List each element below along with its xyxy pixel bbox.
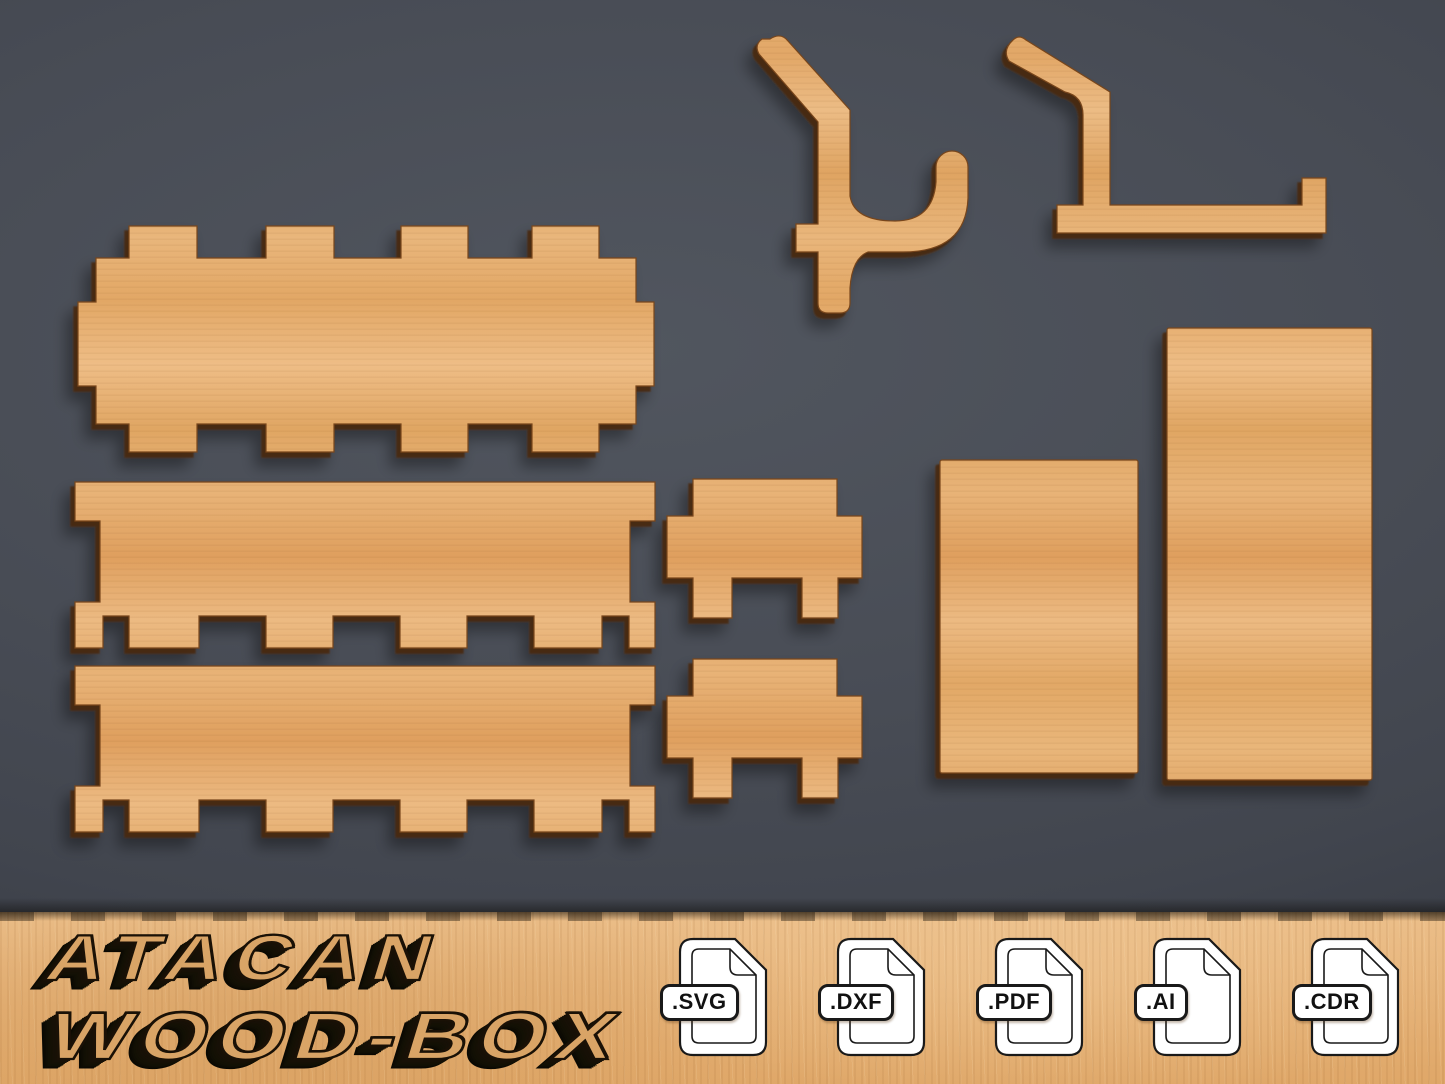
piece-pegboard-hook-curved [757, 36, 968, 313]
brand-title-line1: ATACAN [38, 920, 455, 995]
file-format-badge: .DXF [818, 984, 894, 1021]
file-format-dxf: .DXF [835, 936, 927, 1058]
piece-side-panel-long-top [75, 482, 655, 648]
file-format-svg: .SVG [677, 936, 769, 1058]
file-format-badge: .SVG [660, 984, 739, 1021]
file-format-pdf: .PDF [993, 936, 1085, 1058]
piece-side-panel-long-bottom [75, 666, 655, 832]
brand-title-line2: WOOD-BOX [38, 998, 636, 1075]
render-background [0, 0, 1445, 912]
file-format-badge: .PDF [976, 984, 1052, 1021]
brand-banner: ATACAN WOOD-BOX .SVG .DXF .PDF [0, 912, 1445, 1084]
file-format-badge: .CDR [1292, 984, 1372, 1021]
piece-plain-rectangle-tall [1167, 328, 1372, 780]
wood-pieces-canvas [0, 0, 1445, 912]
piece-plain-rectangle-short [940, 460, 1138, 773]
piece-box-base-panel-finger-joints [78, 226, 654, 452]
file-format-ai: .AI [1151, 936, 1243, 1058]
file-format-badge: .AI [1134, 984, 1188, 1021]
product-listing-image: ATACAN WOOD-BOX .SVG .DXF .PDF [0, 0, 1445, 1084]
piece-end-panel-small-top [667, 479, 862, 618]
piece-end-panel-small-bottom [667, 659, 862, 798]
file-format-cdr: .CDR [1309, 936, 1401, 1058]
piece-pegboard-hook-l-shaped [1006, 37, 1326, 233]
